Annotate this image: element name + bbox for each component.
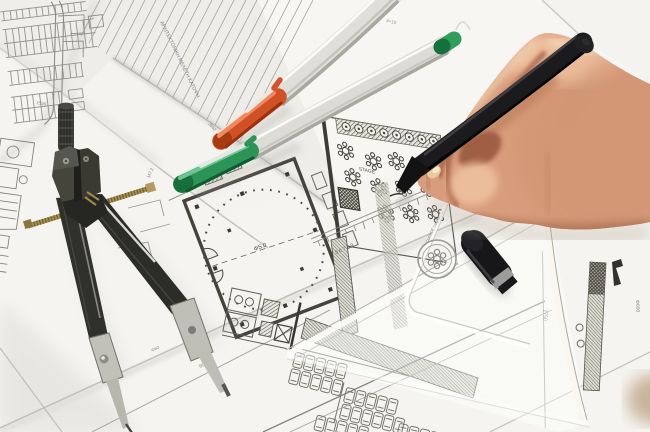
svg-text:Φ600: Φ600 <box>634 300 640 313</box>
